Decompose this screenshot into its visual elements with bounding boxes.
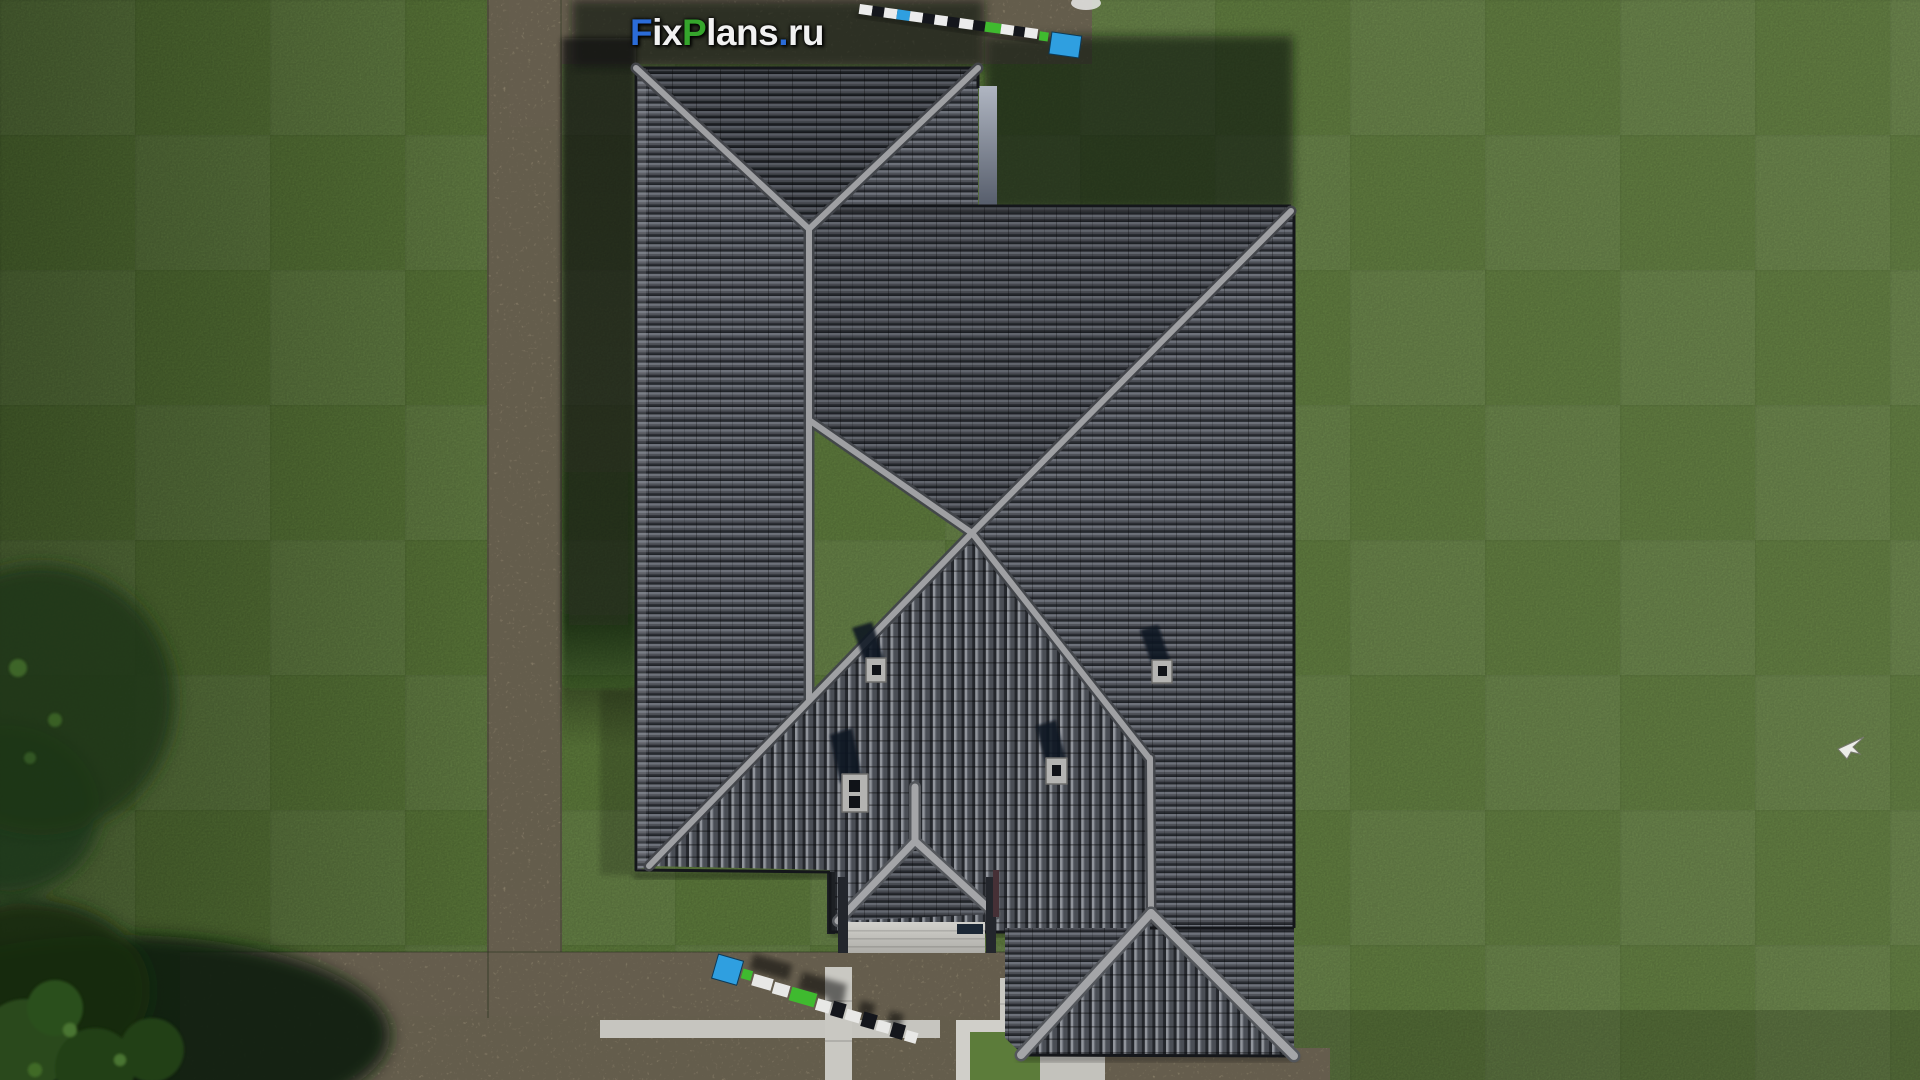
scalebar-green-marker bbox=[1039, 31, 1049, 41]
watermark-letter: P bbox=[682, 12, 706, 53]
eave-course-light bbox=[637, 68, 646, 870]
shadow-north-right bbox=[985, 36, 1293, 210]
fixplans-watermark: FixPlans.ru bbox=[630, 12, 824, 54]
watermark-letter: ru bbox=[788, 12, 824, 53]
gravel-edge bbox=[487, 0, 489, 1018]
porch-window bbox=[957, 924, 983, 934]
scalebar-blue-marker bbox=[1049, 32, 1082, 58]
watermark-letter: ix bbox=[652, 12, 682, 53]
garage-ridge bbox=[1150, 758, 1151, 913]
aerial-house-render bbox=[0, 0, 1920, 1080]
shadow-west bbox=[562, 38, 636, 748]
watermark-letter: lans bbox=[706, 12, 778, 53]
watermark-letter: F bbox=[630, 12, 652, 53]
east-wall bbox=[979, 86, 997, 206]
watermark-letter: . bbox=[778, 12, 788, 53]
render-viewport: FixPlans.ru bbox=[0, 0, 1920, 1080]
